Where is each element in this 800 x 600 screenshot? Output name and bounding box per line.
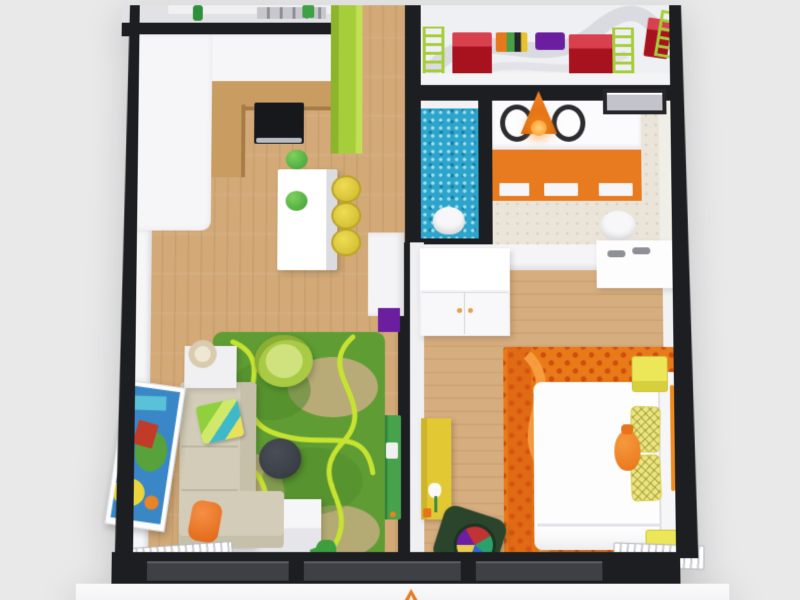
vanity-front bbox=[492, 150, 641, 180]
floor-plan bbox=[101, 0, 699, 600]
drawer-front bbox=[544, 183, 578, 196]
green-bowl-island bbox=[286, 191, 308, 211]
wardrobe-handle bbox=[457, 308, 462, 313]
exterior-window-pane bbox=[147, 561, 289, 580]
bar-stool bbox=[331, 175, 361, 203]
pendant-bulb bbox=[531, 120, 547, 136]
nightstand bbox=[631, 356, 668, 392]
wc-toilet bbox=[433, 207, 465, 235]
lime-cabinet bbox=[331, 5, 363, 153]
kids-wall-face bbox=[419, 73, 672, 85]
wall-entry-vertical bbox=[405, 5, 421, 248]
toy-box bbox=[496, 32, 528, 51]
purple-mat bbox=[535, 32, 565, 50]
bed-fold bbox=[537, 524, 678, 527]
cooktop-handle bbox=[256, 138, 302, 143]
wardrobe-handle bbox=[468, 308, 473, 313]
coffee-table bbox=[259, 438, 302, 478]
exterior-band bbox=[75, 584, 729, 600]
sofa-seam bbox=[182, 445, 238, 447]
wardrobe-seam bbox=[464, 292, 465, 334]
green-door bbox=[383, 415, 401, 519]
tulip-stem bbox=[434, 496, 437, 512]
window bbox=[603, 89, 667, 114]
kids-bed-red bbox=[452, 32, 492, 79]
lime-armchair-seat bbox=[266, 344, 303, 378]
wc-wall-strip bbox=[421, 101, 478, 109]
green-bottle-icon bbox=[193, 5, 203, 21]
spotlight-icon bbox=[607, 250, 625, 257]
tulip-pot bbox=[423, 508, 431, 517]
hall-console-purple bbox=[378, 308, 400, 332]
hall-console bbox=[368, 232, 404, 315]
kitchen-wall-left bbox=[134, 34, 212, 230]
green-bowl-counter bbox=[286, 150, 308, 170]
exterior-window-pane bbox=[304, 561, 461, 580]
scene bbox=[0, 0, 800, 600]
drawer-front bbox=[499, 183, 529, 196]
drawer-front bbox=[599, 183, 633, 196]
kitchen-island bbox=[277, 169, 337, 270]
spotlight-icon bbox=[632, 247, 650, 254]
sofa-seam bbox=[181, 489, 237, 491]
bathroom-toilet bbox=[600, 211, 636, 241]
vanity-sink bbox=[552, 105, 586, 142]
door-handle bbox=[386, 442, 398, 458]
faucet-icon bbox=[257, 7, 326, 19]
bar-stool bbox=[331, 229, 361, 257]
door-knob-icon bbox=[390, 511, 396, 517]
orange-cushion-neck bbox=[621, 424, 633, 434]
bar-stool bbox=[331, 202, 361, 230]
kitchen-counter-return bbox=[211, 105, 245, 178]
orange-cushion bbox=[614, 430, 641, 470]
table-lamp-inner bbox=[195, 346, 211, 362]
green-glass-icon bbox=[302, 5, 314, 18]
wall-wc-bathroom bbox=[478, 101, 492, 239]
exterior-window-pane bbox=[476, 561, 603, 580]
